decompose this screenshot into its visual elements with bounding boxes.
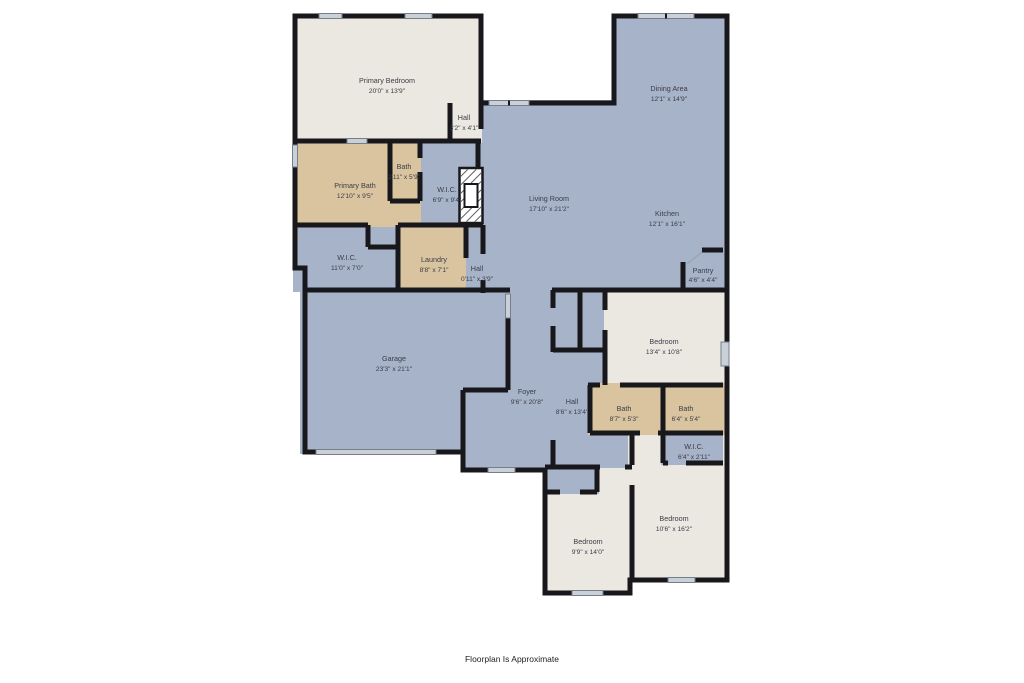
floorplan-image: Primary Bedroom 20'0" x 13'9" Hall 3'2" … bbox=[0, 0, 1024, 683]
room-label-laundry: Laundry bbox=[421, 255, 447, 264]
room-shape-bath-2 bbox=[663, 383, 725, 435]
room-label-dining-area: Dining Area bbox=[650, 84, 687, 93]
room-label-primary-bath: Primary Bath bbox=[334, 181, 376, 190]
window-primary-bedroom-2 bbox=[405, 14, 432, 19]
room-label-hall-main: Hall bbox=[566, 397, 579, 406]
window-primary-bedroom-1 bbox=[319, 14, 342, 19]
room-dims-primary-bath: 12'10" x 9'5" bbox=[337, 193, 374, 200]
room-label-primary-bedroom: Primary Bedroom bbox=[359, 76, 415, 85]
door-primary-bedroom bbox=[347, 139, 367, 144]
room-label-wic-primary: W.I.C. bbox=[437, 185, 457, 194]
window-bedroom-99 bbox=[572, 591, 603, 596]
room-dims-pantry: 4'6" x 4'4" bbox=[689, 277, 718, 284]
room-label-bedroom-106: Bedroom bbox=[659, 514, 688, 523]
room-label-bedroom-99: Bedroom bbox=[573, 537, 602, 546]
door-garage-entry bbox=[506, 294, 511, 318]
footer-note: Floorplan Is Approximate bbox=[465, 654, 559, 664]
fireplace bbox=[460, 168, 483, 223]
room-dims-wic-primary: 6'9" x 9'4" bbox=[433, 197, 462, 204]
room-dims-wic-11: 11'0" x 7'0" bbox=[331, 265, 364, 272]
room-dims-bedroom-99: 9'9" x 14'0" bbox=[572, 549, 605, 556]
room-label-hall-upper: Hall bbox=[458, 113, 471, 122]
room-label-foyer: Foyer bbox=[518, 387, 537, 396]
room-dims-bath-2: 6'4" x 5'4" bbox=[672, 416, 701, 423]
room-dims-bedroom-106: 10'6" x 16'2" bbox=[656, 526, 693, 533]
room-dims-foyer: 9'6" x 20'8" bbox=[511, 399, 544, 406]
room-label-bath-1: Bath bbox=[617, 404, 632, 413]
room-shape-living-kitchen bbox=[478, 100, 727, 293]
room-dims-bedroom-134: 13'4" x 10'8" bbox=[646, 349, 683, 356]
room-dims-garage: 23'3" x 21'1" bbox=[376, 366, 413, 373]
floorplan-svg: Primary Bedroom 20'0" x 13'9" Hall 3'2" … bbox=[0, 0, 1024, 683]
room-label-pantry: Pantry bbox=[693, 266, 714, 275]
room-dims-hall-upper: 3'2" x 4'1" bbox=[450, 125, 479, 132]
room-label-bedroom-134: Bedroom bbox=[649, 337, 678, 346]
room-label-bath-2: Bath bbox=[679, 404, 694, 413]
room-label-living-room: Living Room bbox=[529, 194, 569, 203]
window-bedroom-106 bbox=[668, 578, 695, 583]
room-dims-primary-bedroom: 20'0" x 13'9" bbox=[369, 88, 406, 95]
room-dims-dining-area: 12'1" x 14'9" bbox=[651, 96, 688, 103]
room-dims-hall-main: 8'6" x 13'4" bbox=[556, 409, 589, 416]
window-primary-bath-left bbox=[293, 145, 298, 167]
window-foyer-bottom bbox=[488, 468, 515, 473]
room-label-bath-primary-small: Bath bbox=[397, 162, 412, 171]
window-bedroom-134 bbox=[721, 342, 729, 366]
garage-door bbox=[316, 450, 436, 455]
room-dims-kitchen: 12'1" x 16'1" bbox=[649, 221, 686, 228]
room-label-hall-narrow: Hall bbox=[471, 264, 484, 273]
room-label-garage: Garage bbox=[382, 354, 406, 363]
room-dims-bath-1: 8'7" x 5'3" bbox=[610, 416, 639, 423]
room-dims-wic-64: 6'4" x 2'11" bbox=[678, 454, 711, 461]
room-label-wic-11: W.I.C. bbox=[337, 253, 357, 262]
room-dims-hall-narrow: 0'11" x 3'9" bbox=[461, 276, 494, 283]
room-dims-laundry: 8'8" x 7'1" bbox=[420, 267, 449, 274]
room-label-kitchen: Kitchen bbox=[655, 209, 679, 218]
room-dims-bath-primary-small: 2'11" x 5'9" bbox=[388, 174, 421, 181]
room-dims-living-room: 17'10" x 21'2" bbox=[529, 206, 569, 213]
room-label-wic-64: W.I.C. bbox=[684, 442, 704, 451]
